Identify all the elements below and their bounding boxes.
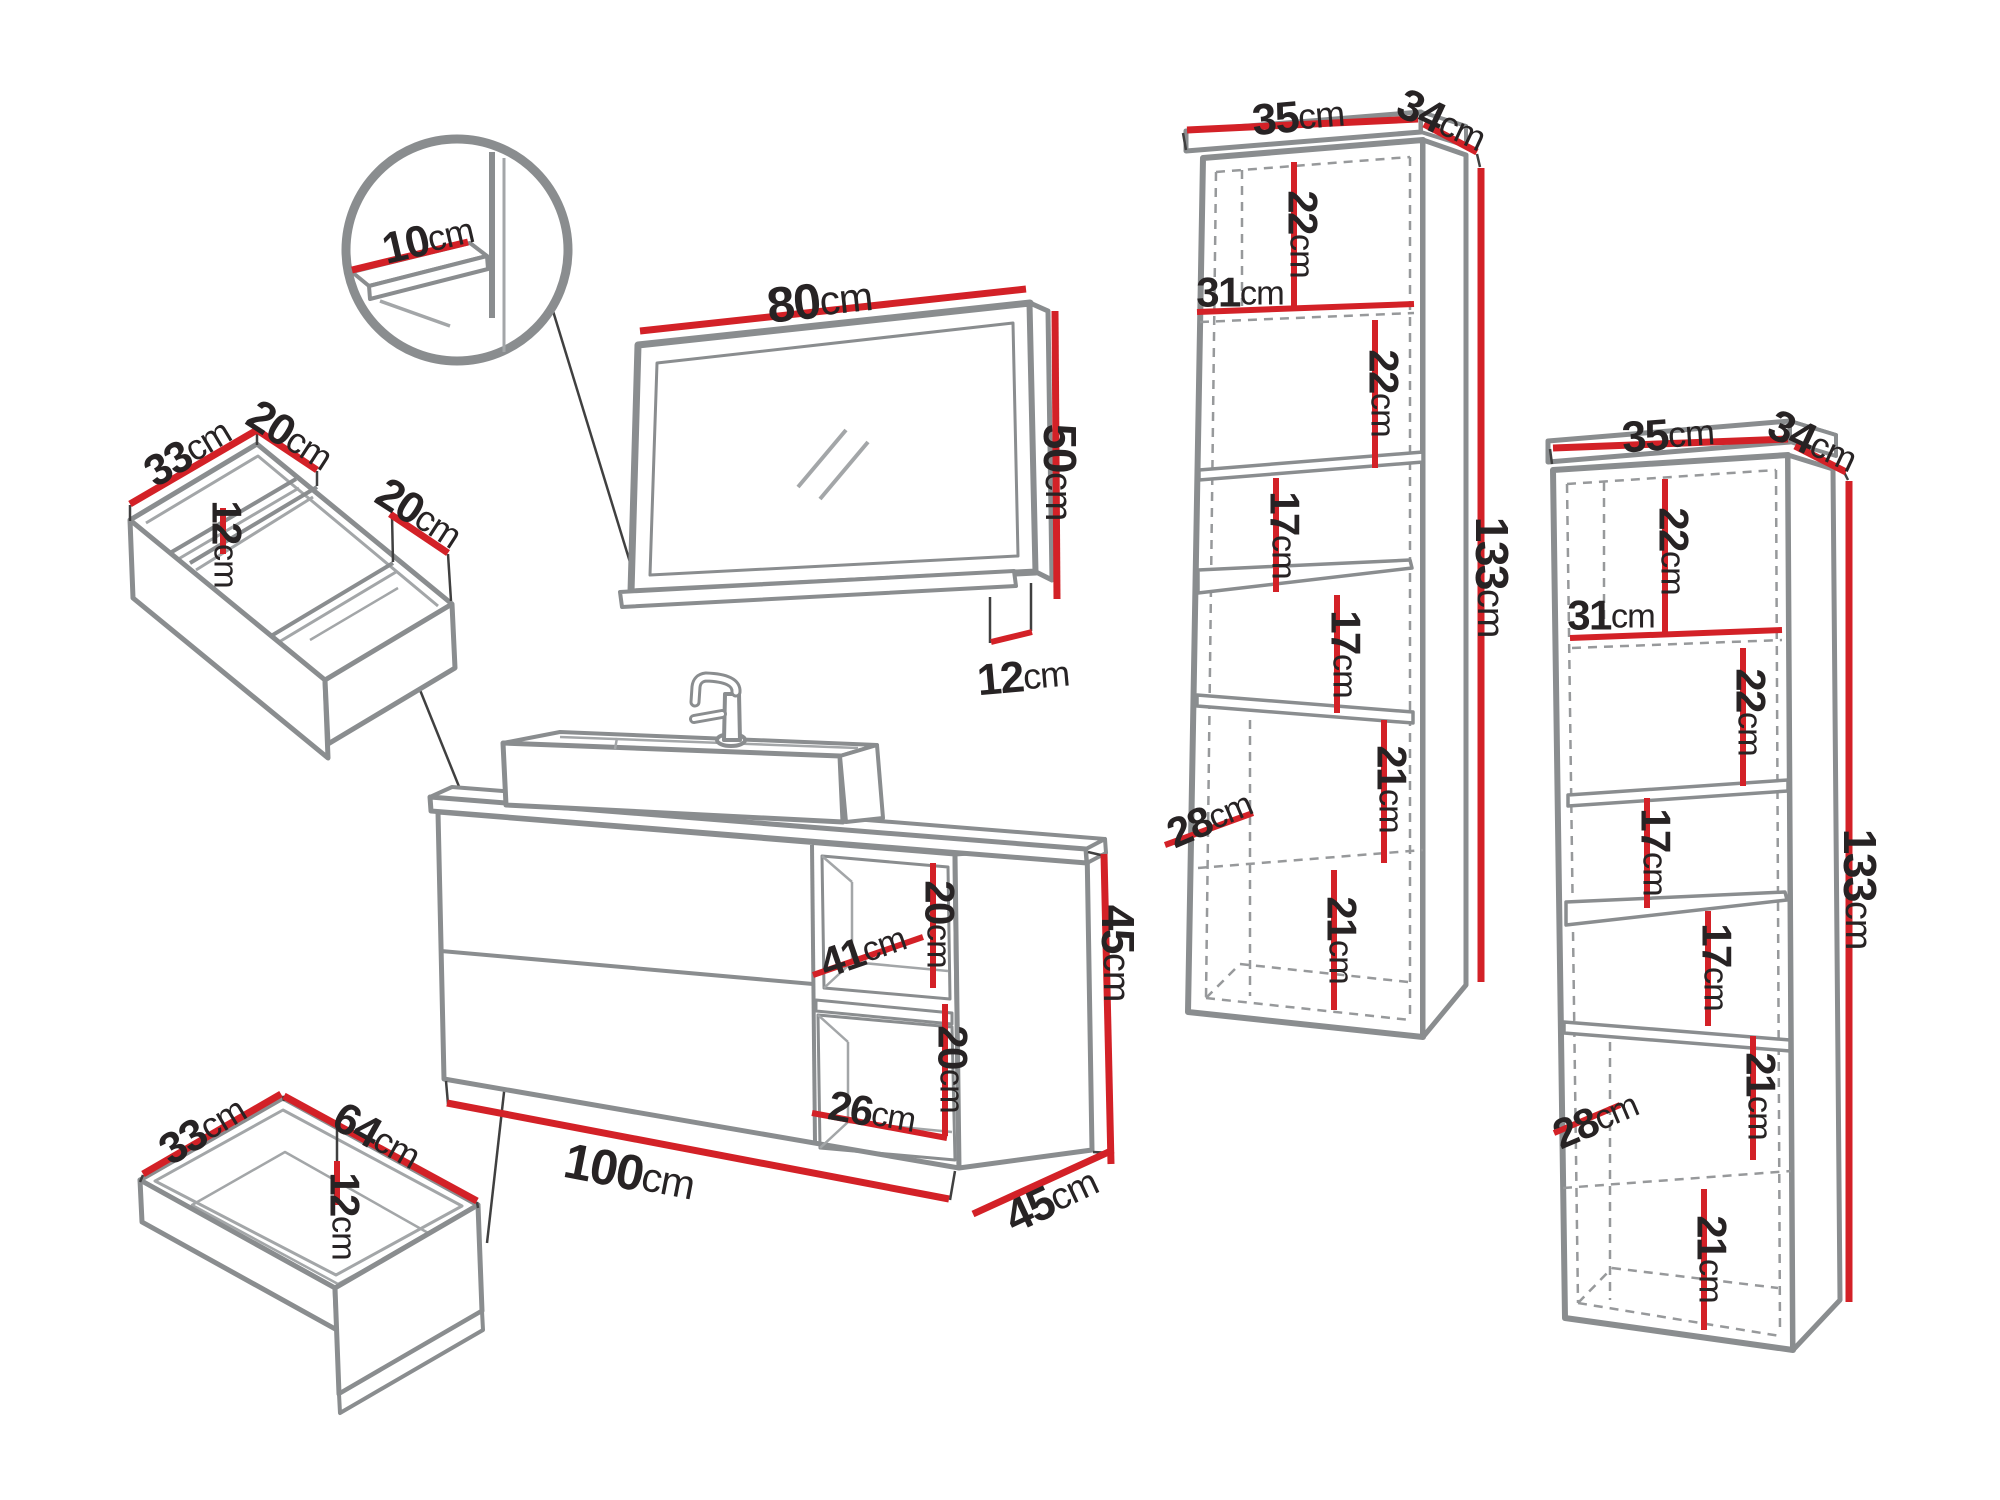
vanity-side [955,845,1092,1168]
cabR-section6-label: 21cm [1688,1215,1735,1303]
cabL-section2-label: 22cm [1360,349,1407,437]
cabR-section4-label: 17cm [1693,923,1740,1011]
cabL-section6-label: 21cm [1318,896,1365,984]
detail-circle: 10cm [346,139,568,361]
cabR-section1-label: 22cm [1650,507,1697,595]
cabL-section3-label: 17cm [1261,491,1308,579]
cabL-height-label: 133cm [1466,517,1518,638]
organizer-divider-height-label: 12cm [203,500,250,588]
cabinet-left-side [1423,140,1466,1037]
cabL-section5-label: 21cm [1368,745,1415,833]
cabinet-right-side [1788,455,1840,1350]
sink [503,732,883,822]
vanity-lower-cubby-label: 20cm [929,1025,976,1113]
cabL-section4-label: 17cm [1322,610,1369,698]
cabL-section1-label: 22cm [1279,190,1326,278]
mirror-height-label: 50cm [1034,424,1086,520]
cabR-inner-width-label: 31cm [1567,592,1655,639]
vanity-upper-cubby-label: 20cm [916,880,963,968]
sink-side [840,745,883,822]
cabL-inner-width-label: 31cm [1196,269,1284,316]
tall-cabinet-left: 35cm 34cm 133cm 22cm 31cm 22cm 17cm 17cm… [1160,79,1518,1037]
tall-cabinet-right: 35cm 34cm 133cm 22cm 31cm 22cm 17cm 17cm… [1546,400,1886,1350]
cabR-section5-label: 21cm [1737,1052,1784,1140]
drawer-inner-height-label: 12cm [321,1172,368,1260]
furniture-dimension-diagram: 10cm 80cm 50cm 12cm [0,0,2000,1500]
cabR-section3-label: 17cm [1632,808,1679,896]
vanity-height-label: 45cm [1092,905,1144,1001]
cabR-section2-label: 22cm [1727,668,1774,756]
faucet-body [724,694,740,740]
cabR-height-label: 133cm [1834,829,1886,950]
